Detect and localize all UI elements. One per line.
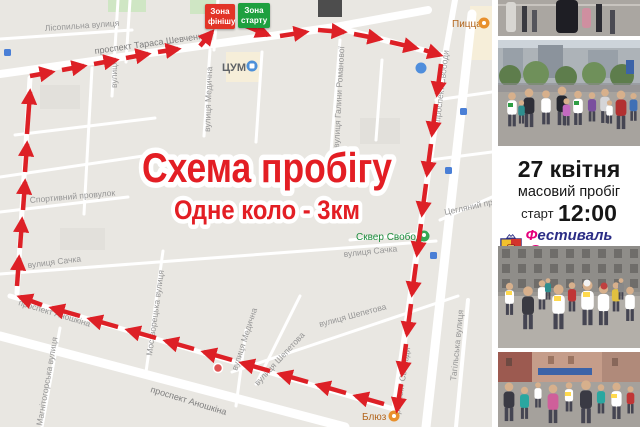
- map-title: Схема пробігу: [142, 144, 393, 191]
- bluz-poi-label: Блюз: [362, 412, 387, 423]
- start-time: 12:00: [558, 200, 617, 226]
- pizza-poi-label: Пицца: [452, 19, 482, 30]
- start-time-row: старт 12:00: [498, 200, 640, 227]
- small-poi-icon: [214, 364, 223, 373]
- event-date: 27 квітня: [498, 156, 640, 183]
- map-subtitle: Одне коло - 3км: [174, 195, 360, 225]
- photo-runners-4: [498, 352, 640, 427]
- start-label: старт: [521, 206, 553, 221]
- logo-line1: Фестиваль: [526, 228, 613, 243]
- info-poi-icon: [416, 63, 427, 74]
- event-info-panel: 27 квітня масовий пробіг старт 12:00 Фес…: [498, 146, 640, 246]
- start-badge-line1: Зона: [241, 6, 267, 16]
- building-block: [60, 228, 105, 250]
- event-name: масовий пробіг: [498, 184, 640, 200]
- finish-zone-badge: Зона фінішу: [205, 4, 235, 29]
- building-block: [360, 118, 400, 144]
- photo-crowd-3: [498, 246, 640, 348]
- route-map: Лісопильна вулиця проспект Тараса Шевчен…: [0, 0, 492, 427]
- finish-badge-line2: фінішу: [208, 17, 232, 27]
- street-label-vertical: вулиця: [109, 60, 119, 88]
- dark-building: [318, 0, 342, 17]
- start-badge-line2: старту: [241, 16, 267, 26]
- tsum-poi-label: ЦУМ: [222, 62, 246, 74]
- food-glyph: [392, 414, 396, 418]
- race-flyer: Лісопильна вулиця проспект Тараса Шевчен…: [0, 0, 640, 427]
- tree-glyph: [422, 233, 426, 237]
- photo-column: 27 квітня масовий пробіг старт 12:00 Фес…: [498, 0, 640, 427]
- park-area: [108, 0, 146, 12]
- map-panel: Лісопильна вулиця проспект Тараса Шевчен…: [0, 0, 492, 427]
- photo-runners-1: [498, 0, 640, 36]
- shopping-bag-glyph: [250, 64, 255, 69]
- finish-badge-line1: Зона: [208, 7, 232, 17]
- photo-runners-2: [498, 40, 640, 146]
- food-glyph: [482, 21, 486, 25]
- building-block: [40, 85, 80, 109]
- start-zone-badge: Зона старту: [238, 3, 270, 28]
